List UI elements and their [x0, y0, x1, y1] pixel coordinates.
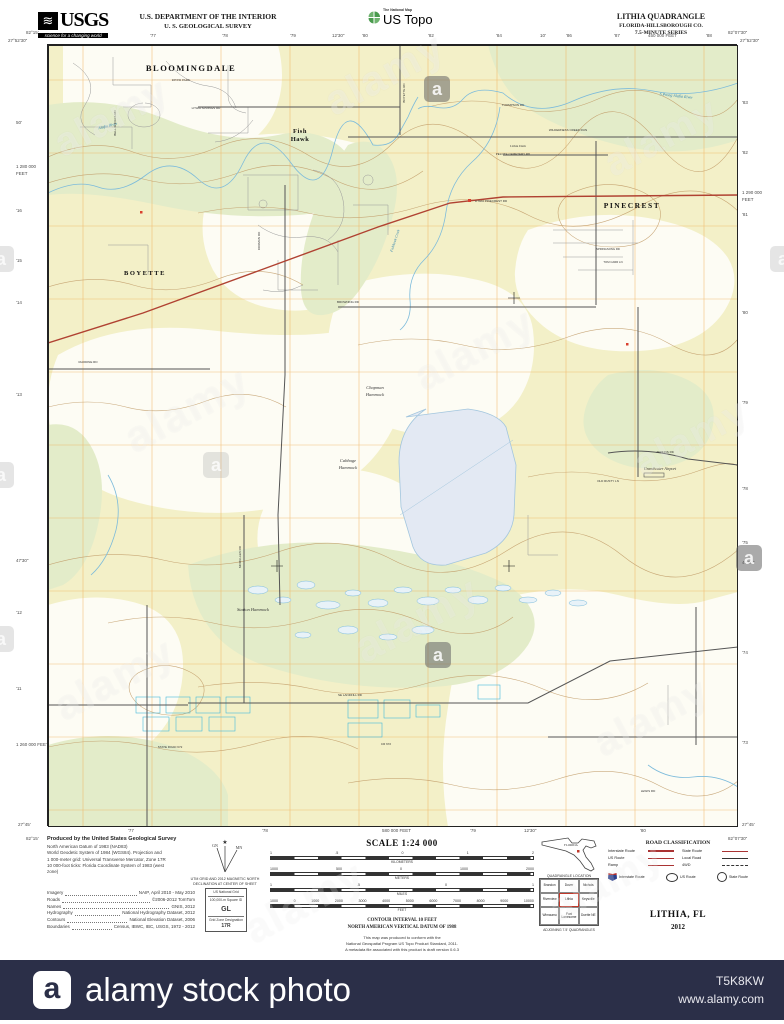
- road-class-item: Local Road: [682, 856, 748, 860]
- map-label: MCMULLEN RD: [238, 545, 242, 568]
- road-class-line-sample: [722, 851, 748, 852]
- scale-block: SCALE 1:24 000 1.5012KILOMETERS100050001…: [252, 838, 552, 953]
- svg-text:★: ★: [222, 839, 227, 846]
- florida-outline-icon: FLORIDA: [538, 834, 600, 872]
- scale-bar-numbers: 1000500010002000: [270, 867, 534, 871]
- data-source-credits: ImageryNAIP, April 2010 - May 2010Roads©…: [47, 890, 195, 931]
- map-label: WILDERNESS CREEK RUN: [549, 128, 587, 132]
- collar-coordinate-label: '16: [16, 208, 22, 213]
- credit-label: Names: [47, 904, 61, 911]
- map-label: SPRINGSONG RD: [596, 247, 620, 251]
- dept-line2: U. S. GEOLOGICAL SURVEY: [118, 23, 298, 30]
- collar-coordinate-label: '11: [16, 686, 22, 691]
- credit-row: NamesGNIS, 2012: [47, 904, 195, 911]
- credit-value: Census, IBWC, IBC, USGS, 1972 - 2012: [114, 924, 195, 931]
- note-line: A metadata file associated with this pro…: [252, 947, 552, 953]
- ustopo-label: US Topo: [383, 12, 433, 27]
- collar-coordinate-label: FEET: [16, 171, 28, 176]
- adjoining-caption: ADJOINING 7.5' QUADRANGLES: [539, 928, 599, 932]
- collar-coordinate-label: '80: [742, 310, 748, 315]
- image-id: T5K8KW: [678, 974, 764, 988]
- production-line: zone): [47, 869, 207, 875]
- collar-coordinate-label: '12: [16, 610, 22, 615]
- interstate-shield-icon: [608, 873, 617, 881]
- map-label: BOYETTE RD: [402, 83, 406, 103]
- credit-value: NAIP, April 2010 - May 2010: [139, 890, 195, 897]
- scale-bar: 1000010002000300040005000600070008000900…: [270, 899, 534, 912]
- topo-map-canvas: BLOOMINGDALERIVER PARKBOYETTEFishHawkPIN…: [48, 45, 738, 827]
- collar-coordinate-label: '79: [742, 400, 748, 405]
- national-map-icon: [368, 11, 381, 24]
- credit-value: National Hydrography Dataset, 2012: [122, 910, 195, 917]
- scale-tick: 7000: [453, 899, 461, 903]
- collar-coordinate-label: 27°45': [18, 822, 31, 827]
- map-label: TOM CARR LN: [603, 260, 622, 264]
- usgs-logo: ≋ USGS science for a changing world: [38, 9, 108, 38]
- adjoining-quad-cell: Duette NE: [579, 907, 598, 925]
- collar-coordinate-label: 12'30": [332, 33, 344, 38]
- map-label: Station Hammock: [237, 607, 270, 612]
- scale-tick: 4000: [382, 899, 390, 903]
- credit-row: ImageryNAIP, April 2010 - May 2010: [47, 890, 195, 897]
- scale-tick: 1: [467, 851, 469, 855]
- map-label: LITHIA SPRINGS RD: [192, 106, 222, 110]
- scale-tick: 1: [532, 883, 534, 887]
- credit-leader: [63, 908, 169, 909]
- collar-coordinate-label: '15: [16, 258, 22, 263]
- usgs-wordmark: USGS: [60, 9, 108, 32]
- road-class-label: 4WD: [682, 863, 690, 867]
- adjoining-quad-cell: Keysville: [579, 893, 598, 907]
- road-class-label: Interstate Route: [608, 849, 635, 853]
- scale-tick: 5000: [406, 899, 414, 903]
- alamy-a-badge: a: [736, 545, 762, 571]
- collar-coordinate-label: FEET: [742, 197, 754, 202]
- route-shields: Interstate RouteUS RouteState Route: [608, 872, 748, 882]
- road-class-line-sample: [648, 858, 674, 859]
- credit-row: HydrographyNational Hydrography Dataset,…: [47, 910, 195, 917]
- scale-tick: 6000: [429, 899, 437, 903]
- usgs-tagline: science for a changing world: [38, 33, 108, 38]
- credit-row: ContoursNational Elevation Dataset, 2006: [47, 917, 195, 924]
- road-classification-title: ROAD CLASSIFICATION: [608, 840, 748, 846]
- map-label: Hawk: [291, 136, 310, 143]
- scale-bars: 1.5012KILOMETERS1000500010002000METERS1.…: [252, 851, 552, 912]
- map-label: BROWNING RD: [337, 300, 360, 304]
- usgs-wave-icon: ≋: [38, 12, 58, 30]
- ustopo-logo: The National Map US Topo: [368, 8, 433, 27]
- road-class-label: US Route: [608, 856, 624, 860]
- adjoining-grid: BrandonDoverNicholsRiverviewLithiaKeysvi…: [539, 878, 599, 926]
- scale-bar-numbers: 1.501: [270, 883, 534, 887]
- usng-title: US National Grid: [206, 890, 246, 895]
- dept-line1: U.S. DEPARTMENT OF THE INTERIOR: [118, 12, 298, 21]
- scale-bar-unit: FEET: [270, 908, 534, 912]
- collar-coordinate-label: '14: [16, 300, 22, 305]
- map-label: RHODINE RD: [78, 360, 98, 364]
- usng-zone: 17R: [206, 923, 246, 930]
- adjoining-quad-cell: Lithia: [559, 893, 578, 907]
- collar-coordinate-label: '79: [290, 33, 296, 38]
- us-national-grid-box: US National Grid 100,000-m Square ID GL …: [205, 888, 247, 932]
- scale-tick: 1000: [460, 867, 468, 871]
- map-label: JERKINS RD: [656, 450, 675, 454]
- route-shield-label: State Route: [729, 875, 748, 879]
- product-standard-note: This map was produced to conform with th…: [252, 935, 552, 953]
- credit-label: Roads: [47, 897, 60, 904]
- credit-label: Contours: [47, 917, 65, 924]
- sheet-name-block: LITHIA, FL 2012: [608, 910, 748, 931]
- collar-coordinate-label: '73: [742, 740, 748, 745]
- route-shield-label: Interstate Route: [619, 875, 645, 879]
- adjoining-quad-cell: Riverview: [540, 893, 559, 907]
- adjoining-quadrangles: BrandonDoverNicholsRiverviewLithiaKeysvi…: [539, 878, 599, 932]
- road-class-label: Ramp: [608, 863, 618, 867]
- map-label: Fish: [293, 128, 307, 135]
- svg-text:GN: GN: [212, 843, 218, 848]
- road-class-left-column: Interstate RouteUS RouteRamp: [608, 849, 674, 870]
- scale-tick: 10000: [524, 899, 534, 903]
- road-class-line-sample: [648, 850, 674, 852]
- map-label: THOMPSON RD: [502, 103, 525, 107]
- production-credits: Produced by the United States Geological…: [47, 836, 207, 875]
- declination-diagram: ★ GN MN UTM GRID AND 2012 MAGNETIC NORTH…: [190, 838, 260, 886]
- scale-bar-unit: METERS: [270, 876, 534, 880]
- route-shield-item: US Route: [666, 873, 696, 882]
- road-class-line-sample: [722, 858, 748, 859]
- collar-coordinate-label: '13: [16, 392, 22, 397]
- scale-bar: 1000500010002000METERS: [270, 867, 534, 880]
- credit-leader: [65, 895, 137, 896]
- map-label: BOYETTE: [124, 270, 166, 277]
- credit-leader: [67, 922, 127, 923]
- scale-tick: 0: [402, 851, 404, 855]
- state-locator: FLORIDA QUADRANGLE LOCATION: [536, 834, 602, 878]
- scale-bar: 1.501MILES: [270, 883, 534, 896]
- map-label: LITHIA PINECREST RD: [475, 199, 508, 203]
- map-sheet-footer: Produced by the United States Geological…: [0, 832, 784, 960]
- alamy-a-badge: a: [770, 246, 784, 272]
- alamy-bottom-bar: a alamy stock photo T5K8KW www.alamy.com: [0, 960, 784, 1020]
- collar-coordinate-label: '75: [742, 540, 748, 545]
- alamy-a-badge: a: [0, 462, 14, 488]
- scale-title: SCALE 1:24 000: [252, 838, 552, 848]
- topographic-map: BLOOMINGDALERIVER PARKBOYETTEFishHawkPIN…: [47, 44, 737, 826]
- svg-text:MN: MN: [236, 845, 243, 850]
- road-class-item: Interstate Route: [608, 849, 674, 853]
- credit-value: National Elevation Dataset, 2006: [129, 917, 195, 924]
- map-label: STATE ROAD 672: [158, 745, 183, 749]
- adjoining-quad-cell: Nichols: [579, 879, 598, 893]
- scale-tick: 1000: [311, 899, 319, 903]
- collar-coordinate-label: '78: [222, 33, 228, 38]
- road-classification: ROAD CLASSIFICATION Interstate RouteUS R…: [608, 840, 748, 882]
- collar-coordinate-label: '87: [614, 33, 620, 38]
- map-label: RIVER PARK: [172, 78, 191, 82]
- collar-coordinate-label: 47'30": [742, 560, 754, 565]
- credit-value: GNIS, 2012: [171, 904, 195, 911]
- scale-tick: 1000: [270, 867, 278, 871]
- production-line: Produced by the United States Geological…: [47, 836, 207, 843]
- scale-tick: .5: [357, 883, 360, 887]
- north-arrows-icon: ★ GN MN: [203, 838, 247, 874]
- collar-coordinate-label: 1 280 000: [16, 164, 36, 169]
- scale-bar-unit: KILOMETERS: [270, 860, 534, 864]
- map-label: Cabbage: [340, 458, 356, 463]
- scale-tick: 0: [445, 883, 447, 887]
- florida-label: FLORIDA: [564, 843, 579, 847]
- collar-coordinate-label: 47'30": [16, 558, 28, 563]
- department-heading: U.S. DEPARTMENT OF THE INTERIOR U. S. GE…: [118, 12, 298, 30]
- adjoining-quad-cell: Dover: [559, 879, 578, 893]
- collar-coordinate-label: '77: [150, 33, 156, 38]
- scale-tick: 500: [336, 867, 342, 871]
- credit-label: Hydrography: [47, 910, 73, 917]
- credit-label: Boundaries: [47, 924, 70, 931]
- collar-coordinate-label: 82°07'30": [728, 30, 747, 35]
- scale-bar-numbers: 1.5012: [270, 851, 534, 855]
- collar-coordinate-label: 27°52'30": [740, 38, 759, 43]
- map-label: BLOOMINGDALE: [146, 63, 236, 73]
- road-class-item: Ramp: [608, 863, 674, 867]
- map-label: Chapman: [366, 385, 384, 390]
- credit-label: Imagery: [47, 890, 63, 897]
- sheet-year: 2012: [608, 923, 748, 931]
- road-class-label: Local Road: [682, 856, 701, 860]
- route-shield-item: State Route: [717, 872, 748, 882]
- alamy-a-badge: a: [0, 626, 14, 652]
- reservoir: [399, 409, 516, 565]
- scale-bar-unit: MILES: [270, 892, 534, 896]
- collar-coordinate-label: 82°15': [26, 30, 39, 35]
- map-label: Hammock: [338, 465, 358, 470]
- road-class-label: State Route: [682, 849, 702, 853]
- state-route-circle-icon: [717, 872, 727, 882]
- collar-coordinate-label: 1 260 000 FEET: [16, 742, 49, 747]
- sheet-name: LITHIA, FL: [608, 910, 748, 920]
- map-label: CR 672: [381, 742, 392, 746]
- collar-coordinate-label: 50': [16, 120, 22, 125]
- map-label: Grandwater Airport: [644, 466, 677, 471]
- usng-square-label: 100,000-m Square ID: [206, 898, 246, 903]
- map-label: PINECREST: [604, 201, 660, 210]
- map-label: BELL SHOALS RD: [113, 109, 117, 135]
- collar-coordinate-label: '78: [742, 486, 748, 491]
- adjoining-quad-cell: Wimauma: [540, 907, 559, 925]
- collar-coordinate-label: '88: [706, 33, 712, 38]
- collar-coordinate-label: 27°45': [742, 822, 755, 827]
- alamy-a-badge: a: [0, 246, 14, 272]
- road-class-item: State Route: [682, 849, 748, 853]
- road-class-line-sample: [722, 865, 748, 866]
- collar-coordinate-label: '83: [742, 100, 748, 105]
- credit-row: BoundariesCensus, IBWC, IBC, USGS, 1972 …: [47, 924, 195, 931]
- scale-tick: 9000: [500, 899, 508, 903]
- scale-tick: 1: [270, 883, 272, 887]
- scale-tick: 2000: [526, 867, 534, 871]
- collar-coordinate-label: '82: [742, 150, 748, 155]
- quad-state-county: FLORIDA-HILLSBOROUGH CO.: [576, 23, 746, 29]
- credit-leader: [72, 929, 112, 930]
- adjoining-quad-cell: Fort Lonesome: [559, 907, 578, 925]
- road-class-item: US Route: [608, 856, 674, 860]
- credit-row: Roads©2006-2012 TomTom: [47, 897, 195, 904]
- scale-tick: 8000: [477, 899, 485, 903]
- credit-leader: [62, 902, 150, 903]
- scale-tick: 0: [294, 899, 296, 903]
- collar-coordinate-label: '84: [496, 33, 502, 38]
- collar-coordinate-label: 10': [540, 33, 546, 38]
- us-route-oval-icon: [666, 873, 678, 882]
- scale-tick: 2: [532, 851, 534, 855]
- scale-tick: 3000: [359, 899, 367, 903]
- map-label: DORMAN RD: [257, 231, 261, 250]
- scale-bar: 1.5012KILOMETERS: [270, 851, 534, 864]
- route-shield-item: Interstate Route: [608, 873, 645, 881]
- scale-bar-numbers: 1000010002000300040005000600070008000900…: [270, 899, 534, 903]
- credit-leader: [75, 915, 120, 916]
- scale-tick: 1000: [270, 899, 278, 903]
- map-label: SE LANDFILL RD: [338, 693, 363, 697]
- collar-coordinate-label: '82: [428, 33, 434, 38]
- scale-tick: 2000: [335, 899, 343, 903]
- scale-tick: .5: [335, 851, 338, 855]
- vertical-datum: NORTH AMERICAN VERTICAL DATUM OF 1988: [252, 924, 552, 931]
- collar-coordinate-label: 1 290 000: [742, 190, 762, 195]
- declination-caption-1: UTM GRID AND 2012 MAGNETIC NORTH: [190, 877, 260, 882]
- collar-coordinate-label: 450 000 FEET: [648, 33, 677, 38]
- quad-name: LITHIA QUADRANGLE: [576, 12, 746, 21]
- map-label: LEWIS RD: [641, 789, 656, 793]
- adjoining-quad-cell: Brandon: [540, 879, 559, 893]
- collar-coordinate-label: '81: [742, 212, 748, 217]
- collar-coordinate-label: '80: [362, 33, 368, 38]
- credit-value: ©2006-2012 TomTom: [152, 897, 195, 904]
- route-shield-label: US Route: [680, 875, 696, 879]
- road-class-item: 4WD: [682, 863, 748, 867]
- contour-interval: CONTOUR INTERVAL 10 FEET: [252, 917, 552, 924]
- scale-tick: 1: [270, 851, 272, 855]
- map-label: Hammock: [365, 392, 385, 397]
- road-class-right-column: State RouteLocal Road4WD: [682, 849, 748, 870]
- collar-coordinate-label: '74: [742, 650, 748, 655]
- collar-coordinate-label: '86: [566, 33, 572, 38]
- road-class-line-sample: [648, 865, 674, 866]
- map-label: PELOTE CEMETERY RD: [496, 152, 531, 156]
- alamy-url: www.alamy.com: [678, 992, 764, 1006]
- collar-coordinate-label: 27°52'30": [8, 38, 27, 43]
- map-label: Lithia Dam: [510, 144, 526, 148]
- declination-caption-2: DECLINATION AT CENTER OF SHEET: [190, 882, 260, 887]
- alamy-logo: a: [33, 971, 71, 1009]
- map-label: OLD RUSTY LN: [597, 479, 619, 483]
- alamy-title: alamy stock photo: [85, 971, 351, 1009]
- scale-tick: 0: [400, 867, 402, 871]
- usng-square-id: GL: [206, 905, 246, 915]
